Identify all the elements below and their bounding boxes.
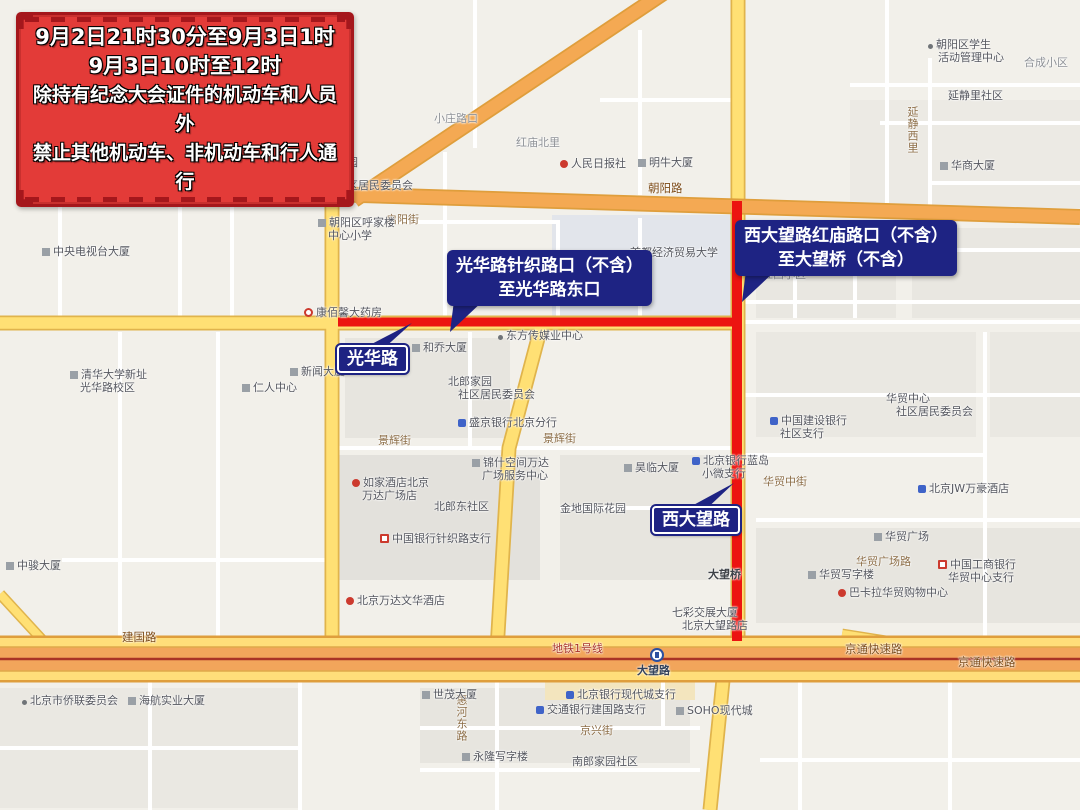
- map-canvas: 朝阳路建国路京通快速路京通快速路地铁1号线启阳街景辉街景辉街华贸中街华贸广场路京…: [0, 0, 1080, 810]
- subway-station-icon: [650, 648, 664, 662]
- callout-line: 至光华路东口: [456, 278, 643, 302]
- banner-line: 9月3日10时至12时: [27, 52, 343, 81]
- road-jianguo-expressway: [0, 647, 1080, 671]
- restriction-notice-banner: 9月2日21时30分至9月3日1时 9月3日10时至12时 除持有纪念大会证件的…: [16, 12, 354, 207]
- road-badge-guanghua: 光华路: [337, 345, 408, 373]
- subway-station-label: 大望路: [637, 662, 670, 678]
- road-badge-xidawang: 西大望路: [652, 506, 740, 534]
- banner-line: 除持有纪念大会证件的机动车和人员外: [27, 81, 343, 139]
- callout-line: 光华路针织路口（不含）: [456, 254, 643, 278]
- callout-line: 西大望路红庙路口（不含）: [744, 224, 948, 248]
- callout-guanghua-section: 光华路针织路口（不含） 至光华路东口: [447, 250, 652, 306]
- callout-line: 至大望桥（不含）: [744, 248, 948, 272]
- banner-line: 禁止其他机动车、非机动车和行人通行: [27, 139, 343, 197]
- banner-line: 9月2日21时30分至9月3日1时: [27, 23, 343, 52]
- callout-xidawang-section: 西大望路红庙路口（不含） 至大望桥（不含）: [735, 220, 957, 276]
